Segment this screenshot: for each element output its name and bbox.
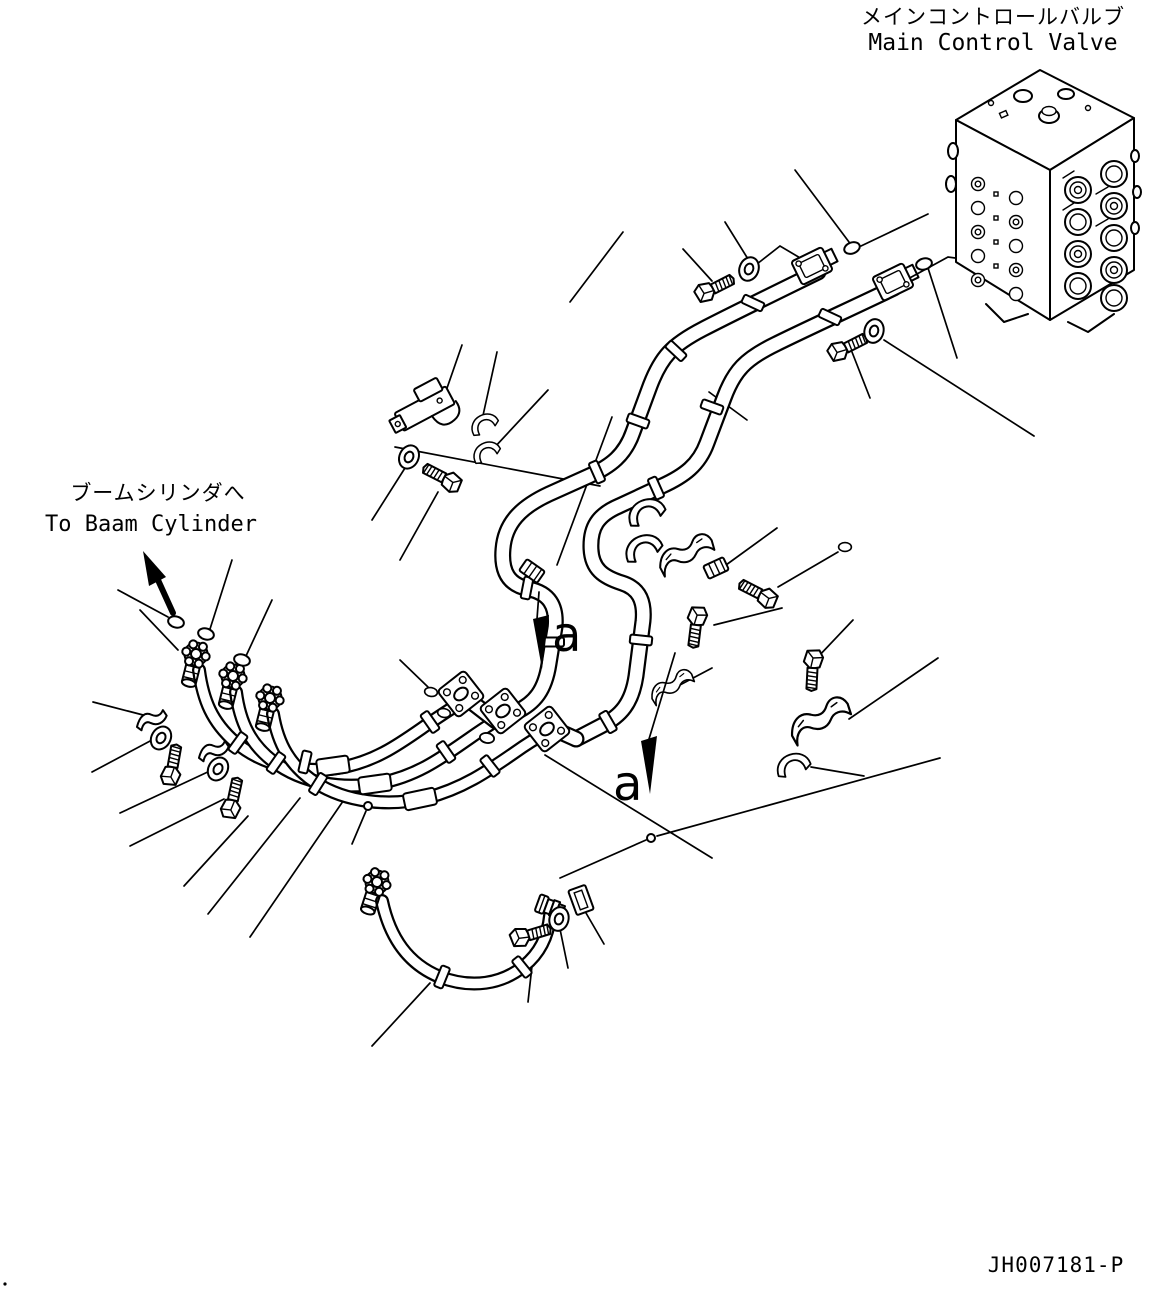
valve-title-jp: メインコントロールバルブ xyxy=(861,5,1125,29)
washer xyxy=(395,442,422,472)
main-control-valve xyxy=(946,70,1141,332)
o-ring xyxy=(843,240,862,256)
o-ring xyxy=(197,627,215,642)
o-ring xyxy=(479,732,495,744)
clamp-half xyxy=(469,437,502,465)
o-ring xyxy=(839,543,852,552)
washer xyxy=(204,754,232,784)
clip-plate xyxy=(703,557,729,579)
clamp-bracket xyxy=(785,694,855,746)
destination-label-jp: ブームシリンダへ xyxy=(70,481,245,505)
page-mark-dot xyxy=(3,1282,6,1285)
section-arrow-a2 xyxy=(641,653,675,794)
o-ring xyxy=(915,257,933,272)
pipe-joint-bands xyxy=(520,294,841,734)
destination-label-en: To Baam Cylinder xyxy=(45,512,257,537)
section-marker-a2: a xyxy=(613,756,642,812)
parts-diagram-page: メインコントロールバルブ Main Control Valve ブームシリンダへ… xyxy=(0,0,1163,1295)
bolt xyxy=(802,650,823,692)
bolt xyxy=(692,270,737,306)
drawing-number: JH007181-P xyxy=(988,1253,1124,1277)
hose-bundle xyxy=(199,670,549,811)
clamp-half xyxy=(773,749,812,778)
leader-dot xyxy=(647,834,655,842)
boom-cylinder-arrow xyxy=(143,551,173,613)
valve-title-en: Main Control Valve xyxy=(868,30,1117,56)
bolt xyxy=(219,776,246,820)
o-ring xyxy=(424,687,438,698)
bolt xyxy=(419,459,464,495)
mount-bracket xyxy=(382,374,464,447)
leader-dot xyxy=(364,802,372,810)
bolt xyxy=(684,606,708,649)
clamp-half xyxy=(621,530,664,565)
small-bracket xyxy=(568,885,594,916)
o-ring xyxy=(167,615,185,630)
washer xyxy=(736,254,762,283)
bolt xyxy=(735,575,780,611)
clamp-bracket xyxy=(646,667,697,706)
section-marker-a1: a xyxy=(552,607,581,663)
